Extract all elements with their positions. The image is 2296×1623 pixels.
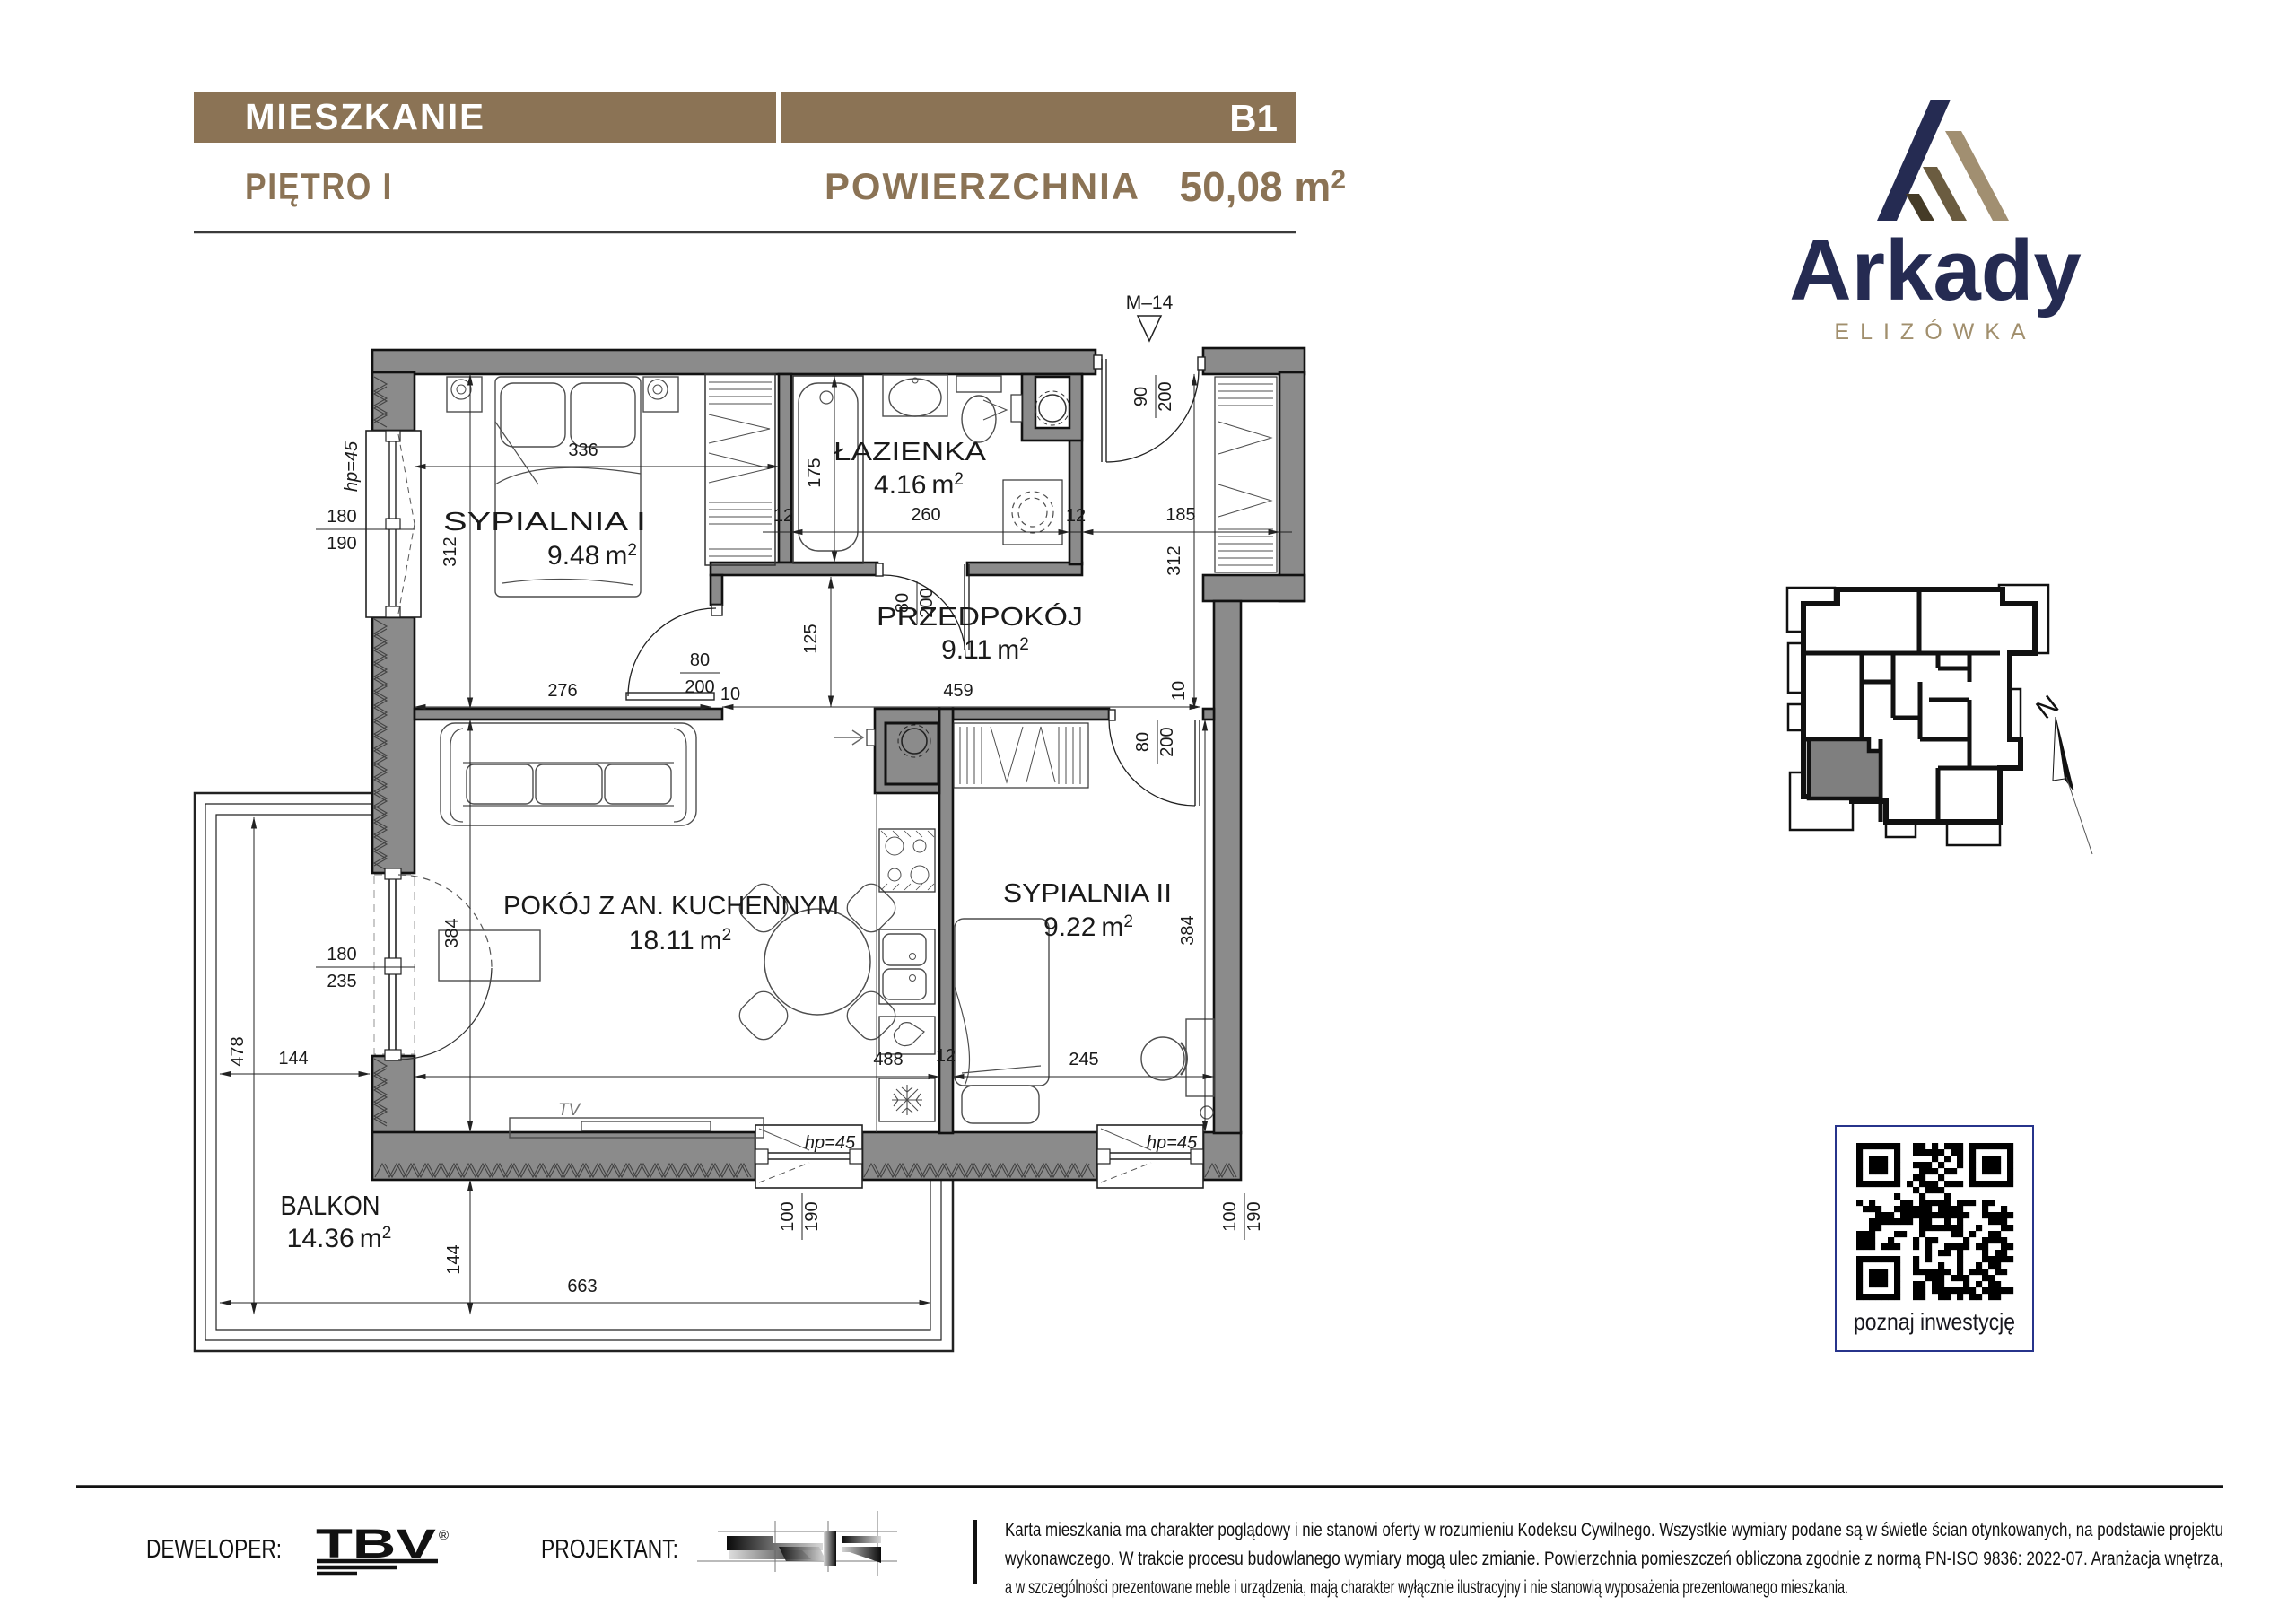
svg-text:80: 80 (690, 650, 710, 670)
svg-text:663: 663 (567, 1277, 597, 1296)
svg-text:®: ® (439, 1528, 449, 1543)
svg-text:SYPIALNIA I: SYPIALNIA I (443, 508, 646, 537)
svg-text:180: 180 (327, 507, 356, 527)
svg-text:14.36 m2: 14.36 m2 (287, 1224, 392, 1253)
svg-text:200: 200 (917, 588, 937, 617)
svg-text:N: N (2030, 690, 2064, 725)
svg-text:POKÓJ Z AN. KUCHENNYM: POKÓJ Z AN. KUCHENNYM (503, 891, 839, 921)
svg-text:18.11 m2: 18.11 m2 (629, 926, 731, 955)
svg-text:B1: B1 (1229, 97, 1278, 139)
svg-text:100: 100 (778, 1201, 798, 1231)
svg-text:10: 10 (1169, 681, 1189, 701)
svg-text:144: 144 (444, 1244, 464, 1274)
svg-text:200: 200 (1157, 727, 1177, 756)
svg-text:488: 488 (873, 1050, 903, 1069)
svg-text:175: 175 (805, 458, 825, 487)
svg-text:12: 12 (773, 506, 793, 526)
svg-text:Arkady: Arkady (1789, 223, 2082, 318)
svg-text:90: 90 (1131, 387, 1151, 406)
svg-text:BALKON: BALKON (281, 1190, 380, 1221)
svg-text:260: 260 (911, 505, 940, 525)
svg-text:185: 185 (1165, 505, 1195, 525)
svg-text:478: 478 (228, 1036, 248, 1066)
svg-text:12: 12 (1066, 506, 1086, 526)
svg-text:190: 190 (327, 534, 356, 554)
svg-text:80: 80 (893, 593, 912, 613)
svg-text:235: 235 (327, 972, 356, 991)
svg-text:384: 384 (442, 918, 462, 947)
svg-text:Karta mieszkania ma charakter: Karta mieszkania ma charakter poglądowy … (1005, 1520, 2223, 1540)
svg-text:384: 384 (1178, 915, 1198, 945)
svg-text:312: 312 (1165, 545, 1184, 575)
svg-text:DEWELOPER:: DEWELOPER: (146, 1535, 282, 1564)
svg-text:PROJEKTANT:: PROJEKTANT: (541, 1535, 678, 1564)
svg-text:MIESZKANIE: MIESZKANIE (245, 96, 485, 137)
svg-text:POWIERZCHNIA: POWIERZCHNIA (825, 165, 1140, 207)
svg-text:ELIZÓWKA: ELIZÓWKA (1834, 318, 2036, 345)
svg-text:100: 100 (1220, 1201, 1240, 1231)
svg-text:poznaj inwestycję: poznaj inwestycję (1854, 1308, 2015, 1335)
svg-text:hp=45: hp=45 (342, 441, 362, 492)
svg-text:245: 245 (1069, 1050, 1098, 1069)
svg-text:190: 190 (802, 1201, 822, 1231)
svg-text:459: 459 (943, 681, 973, 701)
svg-text:190: 190 (1244, 1201, 1264, 1231)
svg-text:PIĘTRO I: PIĘTRO I (245, 165, 393, 207)
svg-text:144: 144 (278, 1049, 308, 1069)
svg-text:12: 12 (936, 1046, 956, 1066)
svg-text:4.16 m2: 4.16 m2 (874, 470, 964, 500)
svg-text:10: 10 (720, 685, 740, 704)
svg-text:200: 200 (1156, 381, 1175, 411)
svg-text:276: 276 (547, 681, 577, 701)
svg-text:SYPIALNIA II: SYPIALNIA II (1003, 879, 1172, 908)
svg-text:ŁAZIENKA: ŁAZIENKA (834, 438, 987, 467)
svg-text:TV: TV (558, 1101, 582, 1120)
svg-text:312: 312 (441, 537, 460, 566)
svg-text:9.11 m2: 9.11 m2 (941, 635, 1029, 665)
svg-text:50,08 m2: 50,08 m2 (1180, 163, 1346, 210)
svg-text:M–14: M–14 (1126, 292, 1174, 313)
svg-text:a w szczególności prezentowane: a w szczególności prezentowane meble i u… (1005, 1577, 1848, 1598)
svg-text:hp=45: hp=45 (805, 1133, 856, 1153)
svg-text:336: 336 (568, 441, 598, 460)
svg-text:hp=45: hp=45 (1147, 1133, 1198, 1153)
svg-text:9.48 m2: 9.48 m2 (547, 541, 637, 571)
svg-text:180: 180 (327, 945, 356, 964)
svg-text:125: 125 (801, 624, 821, 653)
svg-text:9.22 m2: 9.22 m2 (1043, 912, 1133, 942)
svg-text:200: 200 (685, 677, 714, 697)
svg-text:wykonawczego. W trakcie proces: wykonawczego. W trakcie procesu budowlan… (1004, 1549, 2223, 1569)
svg-text:80: 80 (1133, 732, 1153, 752)
